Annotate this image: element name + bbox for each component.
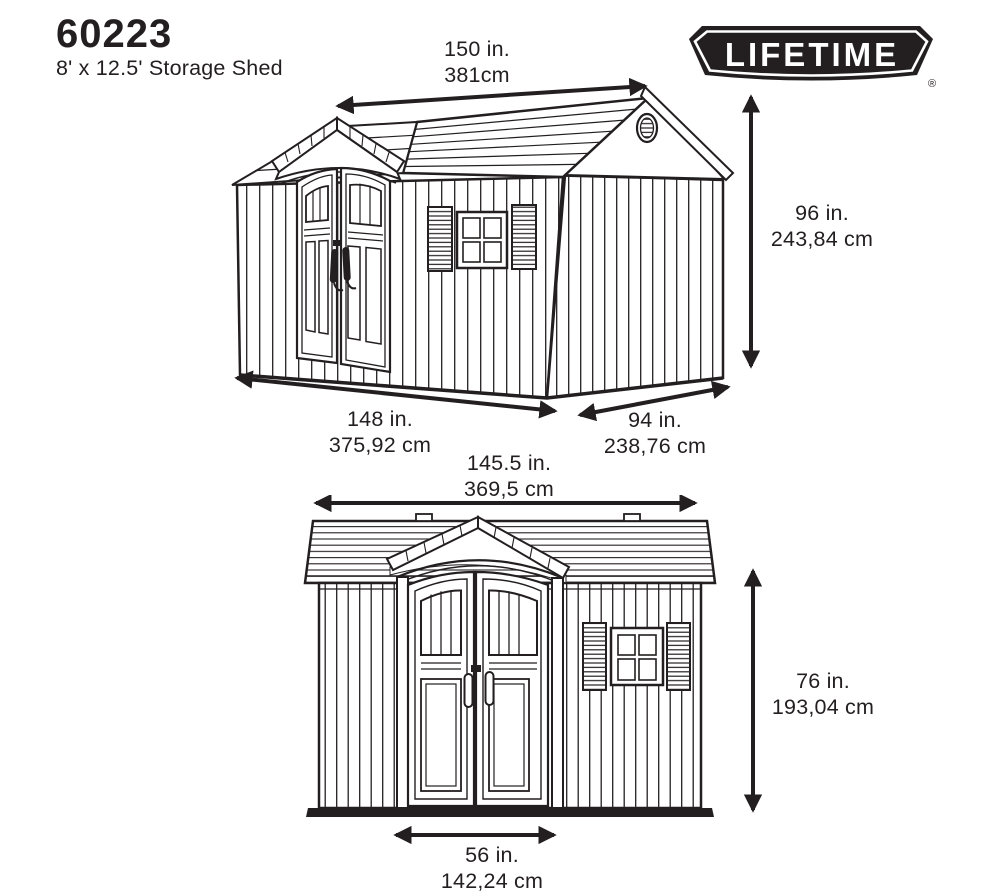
dim-end-width-in: 94 in. xyxy=(570,407,740,433)
dim-roof-length-cm: 381cm xyxy=(392,62,562,88)
front-shed-drawing xyxy=(290,495,810,850)
dim-height-in: 96 in. xyxy=(737,200,907,226)
side-window xyxy=(428,205,536,271)
gable-vent-icon xyxy=(637,114,657,142)
logo-brand-text: LIFETIME xyxy=(725,36,899,73)
dim-door-width-in: 56 in. xyxy=(407,842,577,868)
dim-front-width-in: 145.5 in. xyxy=(424,450,594,476)
front-window xyxy=(583,623,690,690)
dim-label-front-height: 76 in. 193,04 cm xyxy=(738,668,908,720)
model-number: 60223 xyxy=(56,14,283,54)
dim-label-end-width: 94 in. 238,76 cm xyxy=(570,407,740,459)
dim-label-roof-length: 150 in. 381cm xyxy=(392,36,562,88)
dim-front-width-cm: 369,5 cm xyxy=(424,476,594,502)
dim-label-height: 96 in. 243,84 cm xyxy=(737,200,907,252)
dim-height-cm: 243,84 cm xyxy=(737,226,907,252)
dim-door-width-cm: 142,24 cm xyxy=(407,868,577,892)
dim-label-front-width: 145.5 in. 369,5 cm xyxy=(424,450,594,502)
perspective-shed-drawing xyxy=(220,70,760,425)
front-double-doors xyxy=(408,572,548,806)
dim-front-height-cm: 193,04 cm xyxy=(738,694,908,720)
registered-trademark: ® xyxy=(928,78,936,90)
base-strip xyxy=(306,808,714,817)
dim-front-height-in: 76 in. xyxy=(738,668,908,694)
dim-roof-length-in: 150 in. xyxy=(392,36,562,62)
dim-label-door-width: 56 in. 142,24 cm xyxy=(407,842,577,892)
double-doors xyxy=(297,168,390,372)
dim-side-length-in: 148 in. xyxy=(295,406,465,432)
diagram-page: 60223 8' x 12.5' Storage Shed LIFETIME ® xyxy=(0,0,1000,892)
dim-end-width-cm: 238,76 cm xyxy=(570,433,740,459)
